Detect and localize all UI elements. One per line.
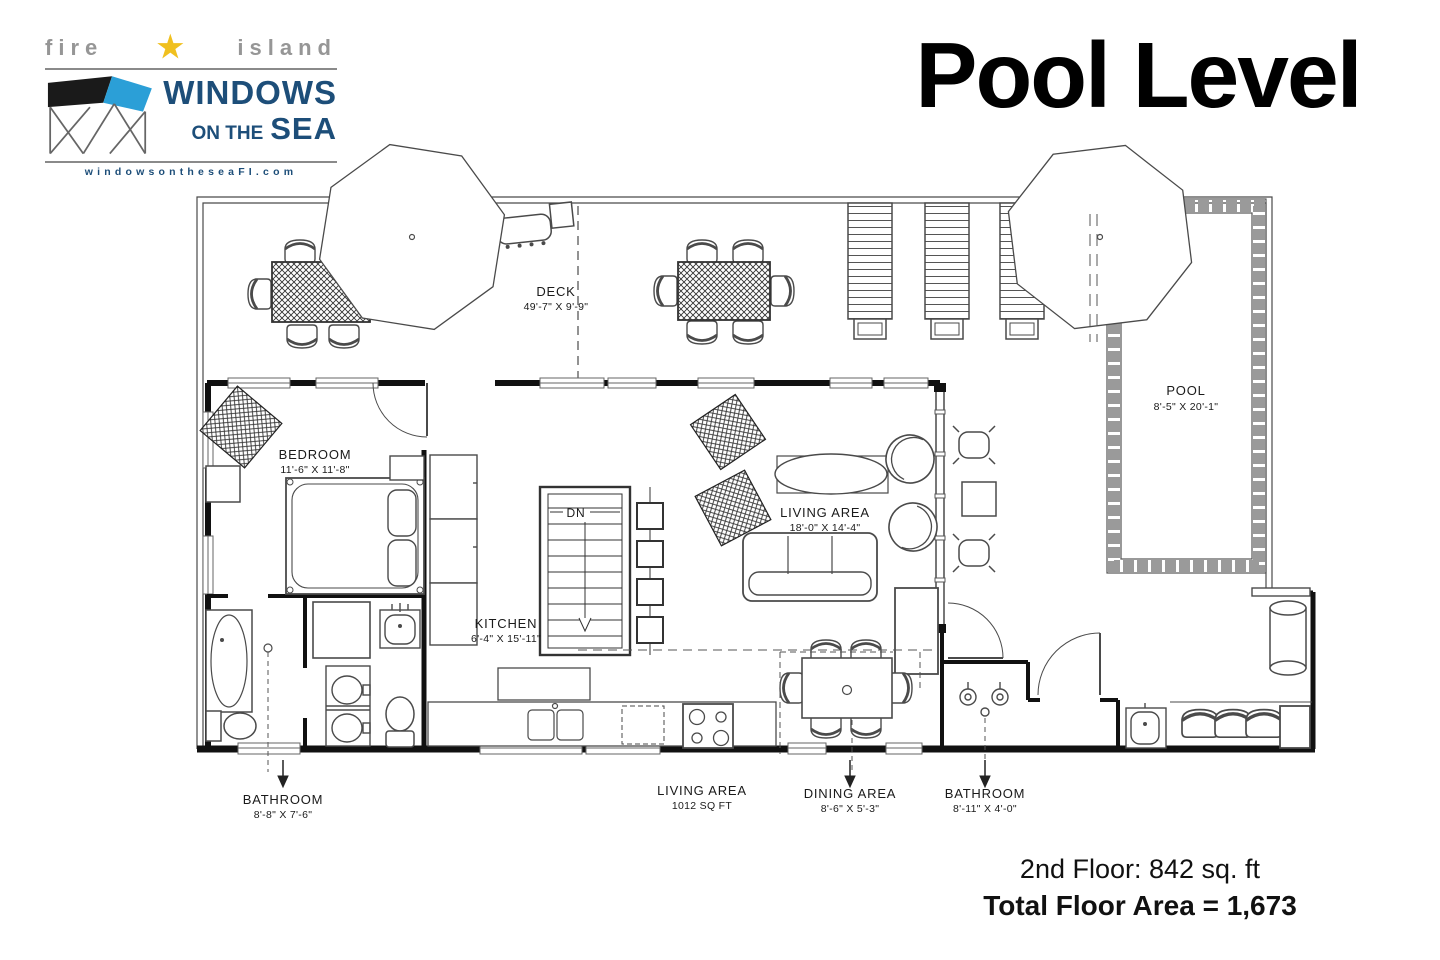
beach-house-icon [45, 74, 157, 158]
toilet [386, 697, 414, 747]
callout-living-area: LIVING AREA [657, 783, 747, 798]
toilet [206, 711, 256, 741]
living-rug [691, 395, 766, 470]
door-pivot [264, 644, 272, 652]
living-label: LIVING AREA [780, 505, 870, 520]
living-room-furniture [691, 395, 996, 674]
shelf [1252, 588, 1310, 596]
bed [286, 478, 424, 594]
sofa [743, 533, 877, 601]
deck-label: DECK [536, 284, 575, 299]
stove [683, 704, 733, 748]
bathroom-left [206, 602, 420, 747]
console-table [775, 454, 888, 494]
living-dims: 18'-0" X 14'-4" [790, 522, 861, 534]
storage-cabinet [1280, 706, 1310, 748]
kayak-storage [1270, 601, 1306, 675]
logo-windows: WINDOWS [157, 76, 337, 109]
powder-sink [380, 603, 420, 648]
nightstand [390, 456, 424, 480]
callout-bathroom-left-dims: 8'-8" X 7'-6" [254, 809, 313, 821]
bedroom-label: BEDROOM [279, 447, 352, 462]
callout-labels: BATHROOM 8'-8" X 7'-6" LIVING AREA 1012 … [243, 783, 1026, 821]
callout-dining-area: DINING AREA [804, 786, 897, 801]
callout-living-area-dims: 1012 SQ FT [672, 800, 732, 812]
dining-table [802, 658, 892, 718]
logo-tagline-island: island [237, 35, 337, 61]
logo-tagline: fire ★ island [45, 30, 337, 65]
pool-dims: 8'-5" X 20'-1" [1154, 401, 1219, 413]
callout-bathroom-right-dims: 8'-11" X 4'-0" [953, 803, 1017, 815]
poolside-seating [953, 426, 996, 572]
deck-dims: 49'-7" X 9'-9" [524, 301, 589, 313]
bedroom-dims: 11'-6" X 11'-8" [280, 464, 349, 476]
callout-arrows [278, 760, 990, 787]
kitchen-fixtures [428, 668, 776, 748]
stairs-dn-label: DN [567, 506, 586, 520]
bathtub [206, 610, 252, 712]
total-floor-area: Total Floor Area = 1,673 [940, 890, 1340, 922]
area-summary: 2nd Floor: 842 sq. ft Total Floor Area =… [940, 854, 1340, 922]
callout-dining-area-dims: 8'-6" X 5'-3" [821, 803, 880, 815]
pool-label: POOL [1166, 383, 1205, 398]
patio-chair [1182, 710, 1218, 738]
kitchen-label: KITCHEN [475, 616, 538, 631]
double-vanity [326, 666, 370, 746]
patio-chair [1246, 710, 1282, 738]
side-table [206, 466, 240, 502]
logo-tagline-fire: fire [45, 35, 103, 61]
lounge-chair [925, 203, 969, 339]
logo-name: WINDOWS ON THE SEA [157, 72, 337, 144]
bathroom-right [960, 588, 1312, 748]
closet-cabinets [430, 455, 477, 645]
lounge-chair [848, 203, 892, 339]
page-title: Pool Level [888, 22, 1388, 129]
grill [495, 202, 576, 250]
shower-heads [960, 682, 1008, 716]
star-icon: ★ [157, 30, 184, 65]
linen-closet [313, 602, 370, 658]
outdoor-sink [1126, 703, 1166, 748]
logo-divider-top [45, 68, 337, 70]
dining-set [780, 640, 912, 738]
stairs [540, 487, 663, 655]
kitchen-dims: 6'-4" X 15'-11" [471, 633, 541, 645]
columns [637, 487, 663, 655]
second-floor-area: 2nd Floor: 842 sq. ft [940, 854, 1340, 885]
callout-bathroom-right: BATHROOM [945, 786, 1026, 801]
kitchen-island [498, 668, 590, 700]
cabinet [895, 588, 938, 674]
deck-table-2 [654, 240, 794, 344]
callout-bathroom-left: BATHROOM [243, 792, 324, 807]
floor-plan: DECK 49'-7" X 9'-9" POOL 8'-5" X 20'-1" … [185, 135, 1330, 835]
